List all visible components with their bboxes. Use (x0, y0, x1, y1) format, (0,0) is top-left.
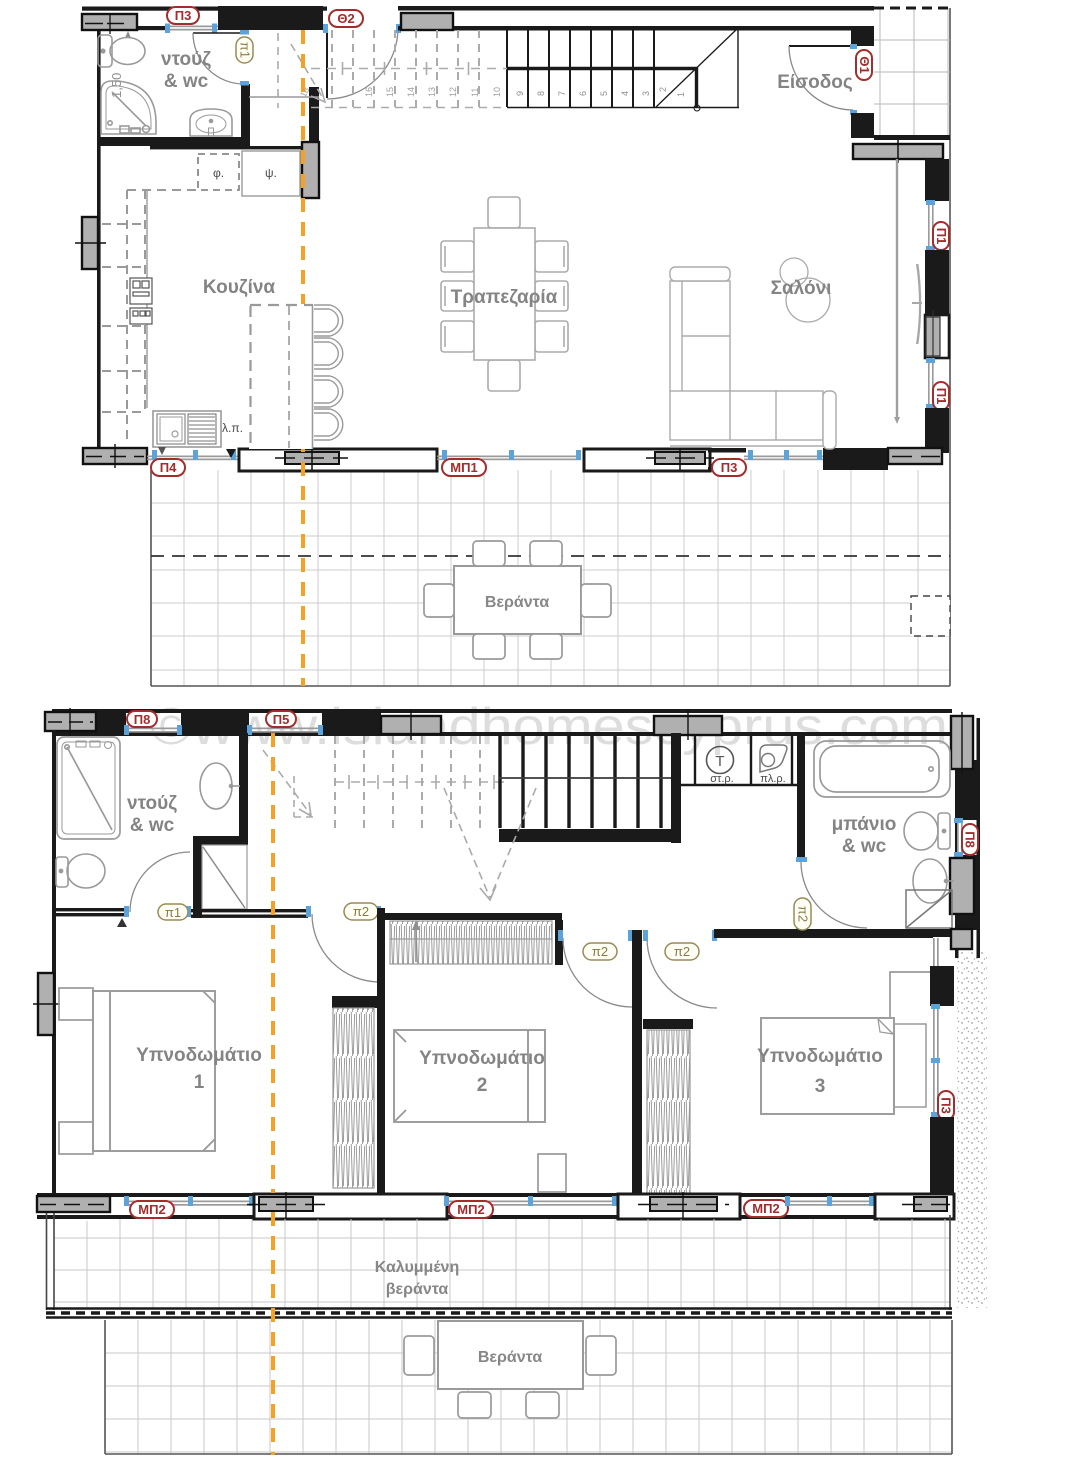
svg-text:1: 1 (194, 1072, 205, 1093)
svg-text:3: 3 (815, 1076, 826, 1097)
svg-text:π2: π2 (796, 906, 811, 922)
svg-text:14: 14 (406, 87, 416, 97)
svg-text:π1: π1 (238, 42, 253, 58)
svg-text:βεράντα: βεράντα (386, 1281, 449, 1298)
svg-text:Θ2: Θ2 (337, 11, 354, 26)
svg-text:Υπνοδωμάτιο: Υπνοδωμάτιο (757, 1046, 883, 1067)
svg-text:16: 16 (364, 87, 374, 97)
svg-text:Π3: Π3 (939, 1097, 954, 1114)
svg-text:6: 6 (578, 91, 588, 96)
svg-text:ψ.: ψ. (265, 166, 277, 180)
svg-text:ΜΠ2: ΜΠ2 (138, 1202, 165, 1217)
svg-text:Π1: Π1 (934, 388, 949, 405)
svg-text:2: 2 (477, 1075, 488, 1096)
svg-text:& wc: & wc (130, 815, 175, 836)
svg-text:Υπνοδωμάτιο: Υπνοδωμάτιο (419, 1048, 545, 1069)
svg-text:9: 9 (515, 91, 525, 96)
svg-text:1,50: 1,50 (109, 73, 124, 98)
svg-text:π2: π2 (674, 944, 690, 959)
svg-text:2: 2 (658, 87, 668, 92)
svg-text:π2: π2 (353, 904, 369, 919)
svg-text:15: 15 (385, 87, 395, 97)
svg-text:4: 4 (620, 91, 630, 96)
svg-text:ΜΠ2: ΜΠ2 (752, 1201, 779, 1216)
svg-text:λ.π.: λ.π. (222, 421, 243, 435)
svg-text:π1: π1 (165, 905, 181, 920)
svg-text:ντούζ: ντούζ (161, 49, 211, 70)
svg-text:8: 8 (536, 91, 546, 96)
svg-text:Θ1: Θ1 (857, 56, 872, 73)
svg-text:& wc: & wc (164, 71, 209, 92)
svg-text:1: 1 (676, 92, 686, 97)
svg-text:Κουζίνα: Κουζίνα (203, 277, 276, 298)
svg-text:10: 10 (492, 87, 502, 97)
svg-text:ΜΠ1: ΜΠ1 (450, 460, 477, 475)
svg-text:Π8: Π8 (963, 831, 978, 848)
svg-text:Βεράντα: Βεράντα (478, 1349, 542, 1366)
svg-text:12: 12 (448, 87, 458, 97)
svg-text:Υπνοδωμάτιο: Υπνοδωμάτιο (136, 1045, 262, 1066)
svg-text:3: 3 (641, 91, 651, 96)
svg-text:T: T (715, 753, 724, 770)
svg-text:Είσοδος: Είσοδος (777, 72, 853, 93)
svg-text:Π8: Π8 (134, 712, 151, 727)
svg-text:μπάνιο: μπάνιο (832, 814, 897, 835)
svg-text:13: 13 (427, 87, 437, 97)
svg-text:φ.: φ. (213, 166, 224, 180)
svg-text:Τραπεζαρία: Τραπεζαρία (451, 287, 558, 308)
svg-text:Π1: Π1 (934, 228, 949, 245)
svg-text:Π3: Π3 (175, 8, 192, 23)
svg-text:στ.ρ.: στ.ρ. (710, 773, 734, 785)
svg-text:Καλυμμένη: Καλυμμένη (375, 1259, 459, 1276)
svg-text:Π4: Π4 (160, 460, 177, 475)
svg-text:πλ.ρ.: πλ.ρ. (760, 773, 785, 785)
svg-text:& wc: & wc (842, 836, 887, 857)
svg-text:Π5: Π5 (273, 712, 290, 727)
svg-text:Βεράντα: Βεράντα (485, 594, 549, 611)
svg-text:7: 7 (557, 91, 567, 96)
svg-text:ΜΠ2: ΜΠ2 (457, 1202, 484, 1217)
svg-text:Π3: Π3 (721, 460, 738, 475)
svg-text:5: 5 (599, 91, 609, 96)
svg-text:ντούζ: ντούζ (127, 793, 177, 814)
svg-text:Σαλόνι: Σαλόνι (771, 278, 832, 299)
svg-text:π2: π2 (592, 944, 608, 959)
